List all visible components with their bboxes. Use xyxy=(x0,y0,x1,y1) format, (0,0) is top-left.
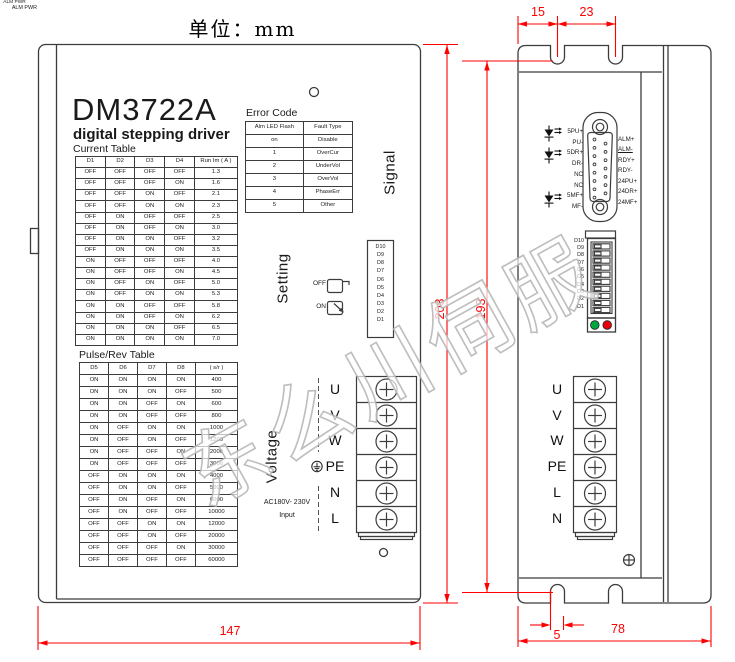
dimension-arrowheads xyxy=(39,21,711,645)
driver-dimension-diagram: 单位：mm DM3722A digital stepping driver Cu… xyxy=(0,0,735,662)
dimension-lines xyxy=(0,0,735,662)
